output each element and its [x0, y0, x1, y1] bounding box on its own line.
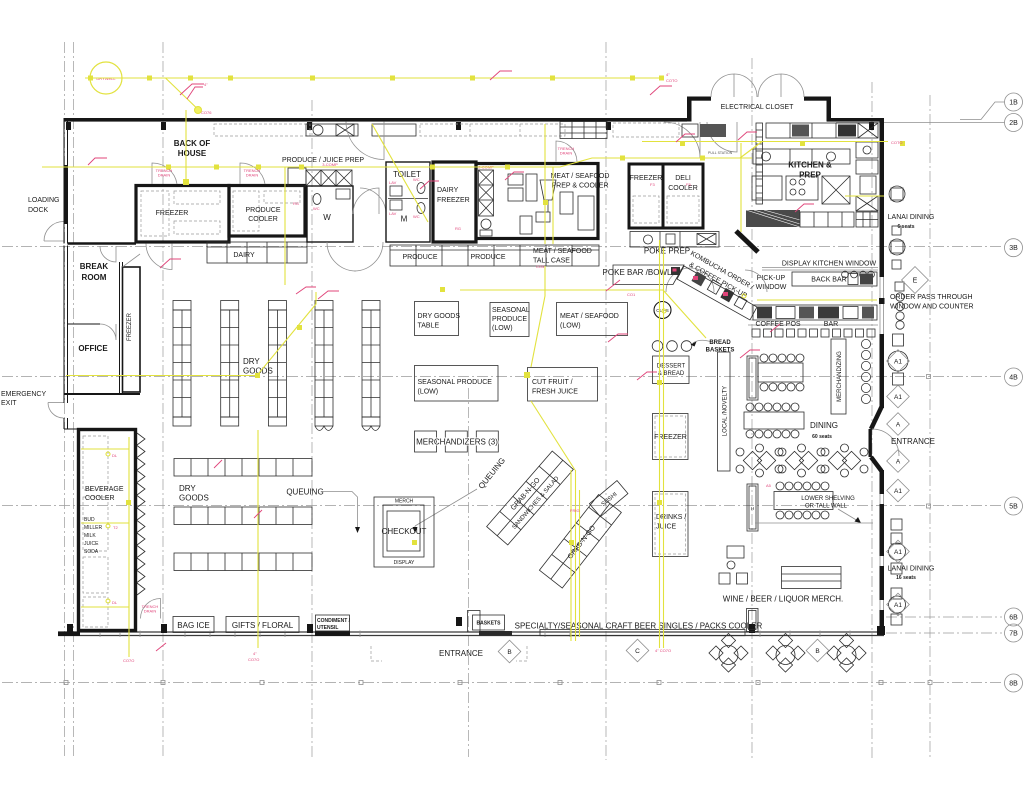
svg-text:CRAFT BEER SINGLES / PACKS COO: CRAFT BEER SINGLES / PACKS COOLER — [606, 622, 763, 631]
svg-text:BACK BAR: BACK BAR — [811, 277, 846, 284]
svg-text:3-COMP: 3-COMP — [322, 162, 338, 167]
svg-text:2B: 2B — [1009, 120, 1018, 127]
svg-text:E: E — [913, 278, 918, 285]
svg-text:DRAIN: DRAIN — [560, 151, 573, 156]
svg-text:1B: 1B — [1009, 100, 1018, 107]
svg-text:COOLER: COOLER — [85, 495, 115, 502]
svg-text:GIFTS / FLORAL: GIFTS / FLORAL — [232, 621, 294, 630]
svg-text:DISPLAY KITCHEN WINDOW: DISPLAY KITCHEN WINDOW — [782, 261, 877, 268]
svg-text:60 seats: 60 seats — [812, 434, 832, 440]
svg-text:WC: WC — [413, 214, 420, 219]
svg-text:A5: A5 — [766, 483, 772, 488]
svg-text:5B: 5B — [1009, 504, 1018, 511]
svg-text:A1: A1 — [894, 394, 902, 401]
svg-text:DESSERT: DESSERT — [657, 364, 686, 370]
svg-text:LAV: LAV — [389, 211, 397, 216]
svg-text:A: A — [896, 459, 901, 466]
svg-text:B: B — [815, 648, 819, 655]
svg-text:7B: 7B — [1009, 631, 1018, 638]
svg-text:BACK OF: BACK OF — [174, 139, 211, 148]
svg-text:POKE PREP: POKE PREP — [644, 247, 690, 256]
svg-text:TABLE: TABLE — [418, 323, 440, 330]
svg-text:DRAIN: DRAIN — [144, 609, 157, 614]
svg-text:EMERGENCY: EMERGENCY — [1, 391, 46, 398]
svg-text:CO76: CO76 — [201, 110, 212, 115]
svg-text:CO7O: CO7O — [248, 657, 259, 662]
svg-text:A: A — [896, 422, 901, 429]
svg-text:DL: DL — [112, 453, 118, 458]
svg-text:WINE / BEER / LIQUOR MERCH.: WINE / BEER / LIQUOR MERCH. — [723, 595, 843, 604]
svg-text:(LOW): (LOW) — [418, 389, 439, 396]
svg-text:F3: F3 — [650, 182, 655, 187]
svg-text:LOWER SHELVING: LOWER SHELVING — [801, 496, 855, 502]
svg-text:FRIG: FRIG — [570, 508, 580, 513]
svg-text:4" CO7O: 4" CO7O — [655, 648, 671, 653]
svg-text:COOLER: COOLER — [248, 216, 278, 223]
svg-text:MEAT / SEAFOOD: MEAT / SEAFOOD — [551, 173, 610, 180]
svg-text:PRODUCE: PRODUCE — [402, 254, 437, 261]
svg-text:DELI: DELI — [675, 175, 691, 182]
svg-text:WINDOW: WINDOW — [756, 284, 787, 291]
svg-text:COFFEE POS: COFFEE POS — [755, 321, 800, 328]
svg-text:CO1: CO1 — [627, 292, 636, 297]
svg-text:4": 4" — [204, 82, 208, 87]
svg-text:DRAIN: DRAIN — [158, 173, 171, 178]
svg-text:T2: T2 — [113, 525, 118, 530]
svg-text:LAV: LAV — [389, 180, 397, 185]
svg-text:BEVERAGE: BEVERAGE — [85, 486, 124, 493]
svg-text:DINING: DINING — [810, 421, 838, 430]
svg-text:EXIT: EXIT — [1, 400, 17, 407]
svg-text:B: B — [507, 649, 511, 656]
svg-text:& BREAD: & BREAD — [658, 371, 685, 377]
svg-text:DISPLAY: DISPLAY — [394, 560, 415, 566]
svg-text:SEASONAL: SEASONAL — [492, 307, 530, 314]
svg-text:BREAK: BREAK — [80, 262, 109, 271]
svg-text:LOADING: LOADING — [28, 197, 60, 204]
svg-text:DRY: DRY — [179, 484, 196, 493]
svg-text:COTO: COTO — [666, 78, 677, 83]
svg-text:COOLER: COOLER — [668, 185, 698, 192]
svg-text:H: H — [751, 506, 754, 511]
svg-text:ELECTRICAL CLOSET: ELECTRICAL CLOSET — [721, 104, 795, 111]
svg-text:CHECKOUT: CHECKOUT — [382, 527, 427, 536]
svg-text:MEAT / SEAFOOD: MEAT / SEAFOOD — [560, 313, 619, 320]
svg-text:ENTRANCE: ENTRANCE — [439, 649, 483, 658]
svg-text:M: M — [401, 215, 408, 224]
svg-text:QUEUING: QUEUING — [286, 488, 323, 497]
svg-text:DRY GOODS: DRY GOODS — [418, 313, 461, 320]
svg-text:BAR: BAR — [824, 321, 838, 328]
svg-text:6 seats: 6 seats — [898, 224, 915, 230]
svg-text:FREEZER: FREEZER — [630, 175, 663, 182]
svg-text:F5: F5 — [686, 182, 691, 187]
svg-text:COTO: COTO — [891, 140, 902, 145]
svg-text:BAG ICE: BAG ICE — [177, 621, 209, 630]
svg-text:DAIRY: DAIRY — [233, 252, 255, 259]
svg-text:FREEZER: FREEZER — [437, 197, 470, 204]
svg-text:LANAI DINING: LANAI DINING — [888, 566, 935, 573]
svg-text:A1: A1 — [894, 602, 902, 609]
svg-text:3B: 3B — [1009, 245, 1018, 252]
svg-text:BREAD: BREAD — [709, 340, 731, 346]
svg-text:PREP & COOLER: PREP & COOLER — [551, 183, 608, 190]
svg-text:KITCHEN &: KITCHEN & — [788, 161, 832, 170]
svg-text:PICK-UP: PICK-UP — [757, 275, 786, 282]
svg-text:MERCH: MERCH — [395, 499, 414, 505]
svg-text:OFFICE: OFFICE — [78, 344, 108, 353]
svg-text:SEASONAL PRODUCE: SEASONAL PRODUCE — [418, 379, 493, 386]
svg-text:LOCAL /NOVELTY: LOCAL /NOVELTY — [723, 386, 729, 436]
svg-text:MERCHANDIZING: MERCHANDIZING — [837, 351, 843, 402]
svg-text:PULL STATION: PULL STATION — [708, 151, 733, 155]
svg-text:A1: A1 — [894, 359, 902, 366]
svg-text:JUICE: JUICE — [84, 541, 99, 547]
svg-text:DOCK: DOCK — [28, 207, 49, 214]
svg-text:FREEZER: FREEZER — [156, 210, 189, 217]
svg-text:WC: WC — [413, 177, 420, 182]
svg-text:OR TALL WALL: OR TALL WALL — [805, 504, 848, 510]
svg-text:4": 4" — [253, 651, 257, 656]
svg-text:HOUSE: HOUSE — [178, 149, 207, 158]
svg-text:ORDER PASS THROUGH: ORDER PASS THROUGH — [890, 294, 973, 301]
svg-text:(LOW): (LOW) — [560, 323, 581, 330]
svg-text:A1: A1 — [894, 488, 902, 495]
svg-text:16 seats: 16 seats — [896, 575, 916, 581]
svg-text:DRAIN: DRAIN — [246, 173, 259, 178]
svg-text:FRESH JUICE: FRESH JUICE — [532, 389, 578, 396]
svg-text:MILK: MILK — [84, 533, 96, 539]
svg-text:ROOM: ROOM — [82, 273, 107, 282]
svg-text:DL: DL — [112, 600, 118, 605]
svg-text:GOODS: GOODS — [179, 494, 209, 503]
svg-text:MERCHANDIZERS (3): MERCHANDIZERS (3) — [416, 438, 498, 447]
svg-text:PRODUCE: PRODUCE — [245, 207, 280, 214]
svg-text:BUD: BUD — [84, 517, 95, 523]
svg-text:DRY: DRY — [243, 357, 260, 366]
svg-text:POKE BAR /BOWL: POKE BAR /BOWL — [603, 268, 672, 277]
svg-text:6B: 6B — [1009, 615, 1018, 622]
svg-text:CONDIMENT /: CONDIMENT / — [317, 618, 351, 624]
svg-text:WC: WC — [313, 206, 320, 211]
svg-text:CO7O: CO7O — [123, 658, 134, 663]
svg-text:W: W — [323, 213, 331, 222]
svg-text:FREEZER: FREEZER — [127, 312, 133, 341]
svg-text:8B: 8B — [1009, 681, 1018, 688]
svg-text:SODA: SODA — [84, 549, 99, 555]
svg-text:PRODUCE: PRODUCE — [470, 254, 505, 261]
svg-text:4B: 4B — [1009, 375, 1018, 382]
svg-text:CO3: CO3 — [536, 264, 545, 269]
svg-text:C: C — [635, 648, 640, 655]
svg-text:(LOW): (LOW) — [492, 325, 513, 332]
svg-text:PRODUCE: PRODUCE — [492, 316, 527, 323]
svg-text:DRINKS /: DRINKS / — [656, 514, 686, 521]
svg-text:UTENSIL: UTENSIL — [317, 625, 338, 631]
svg-text:DAIRY: DAIRY — [437, 187, 459, 194]
svg-text:A1: A1 — [894, 549, 902, 556]
svg-text:LANAI DINING: LANAI DINING — [888, 214, 935, 221]
svg-text:MEAT / SEAFOOD: MEAT / SEAFOOD — [533, 248, 592, 255]
svg-text:SPECIALTY/SEASONAL: SPECIALTY/SEASONAL — [515, 622, 604, 631]
svg-text:ENTRANCE: ENTRANCE — [891, 437, 935, 446]
svg-text:4": 4" — [666, 72, 670, 77]
svg-text:MILLER: MILLER — [84, 525, 102, 531]
svg-text:RG: RG — [455, 226, 461, 231]
svg-text:CUT FRUIT /: CUT FRUIT / — [532, 379, 573, 386]
svg-text:RG: RG — [293, 201, 299, 206]
